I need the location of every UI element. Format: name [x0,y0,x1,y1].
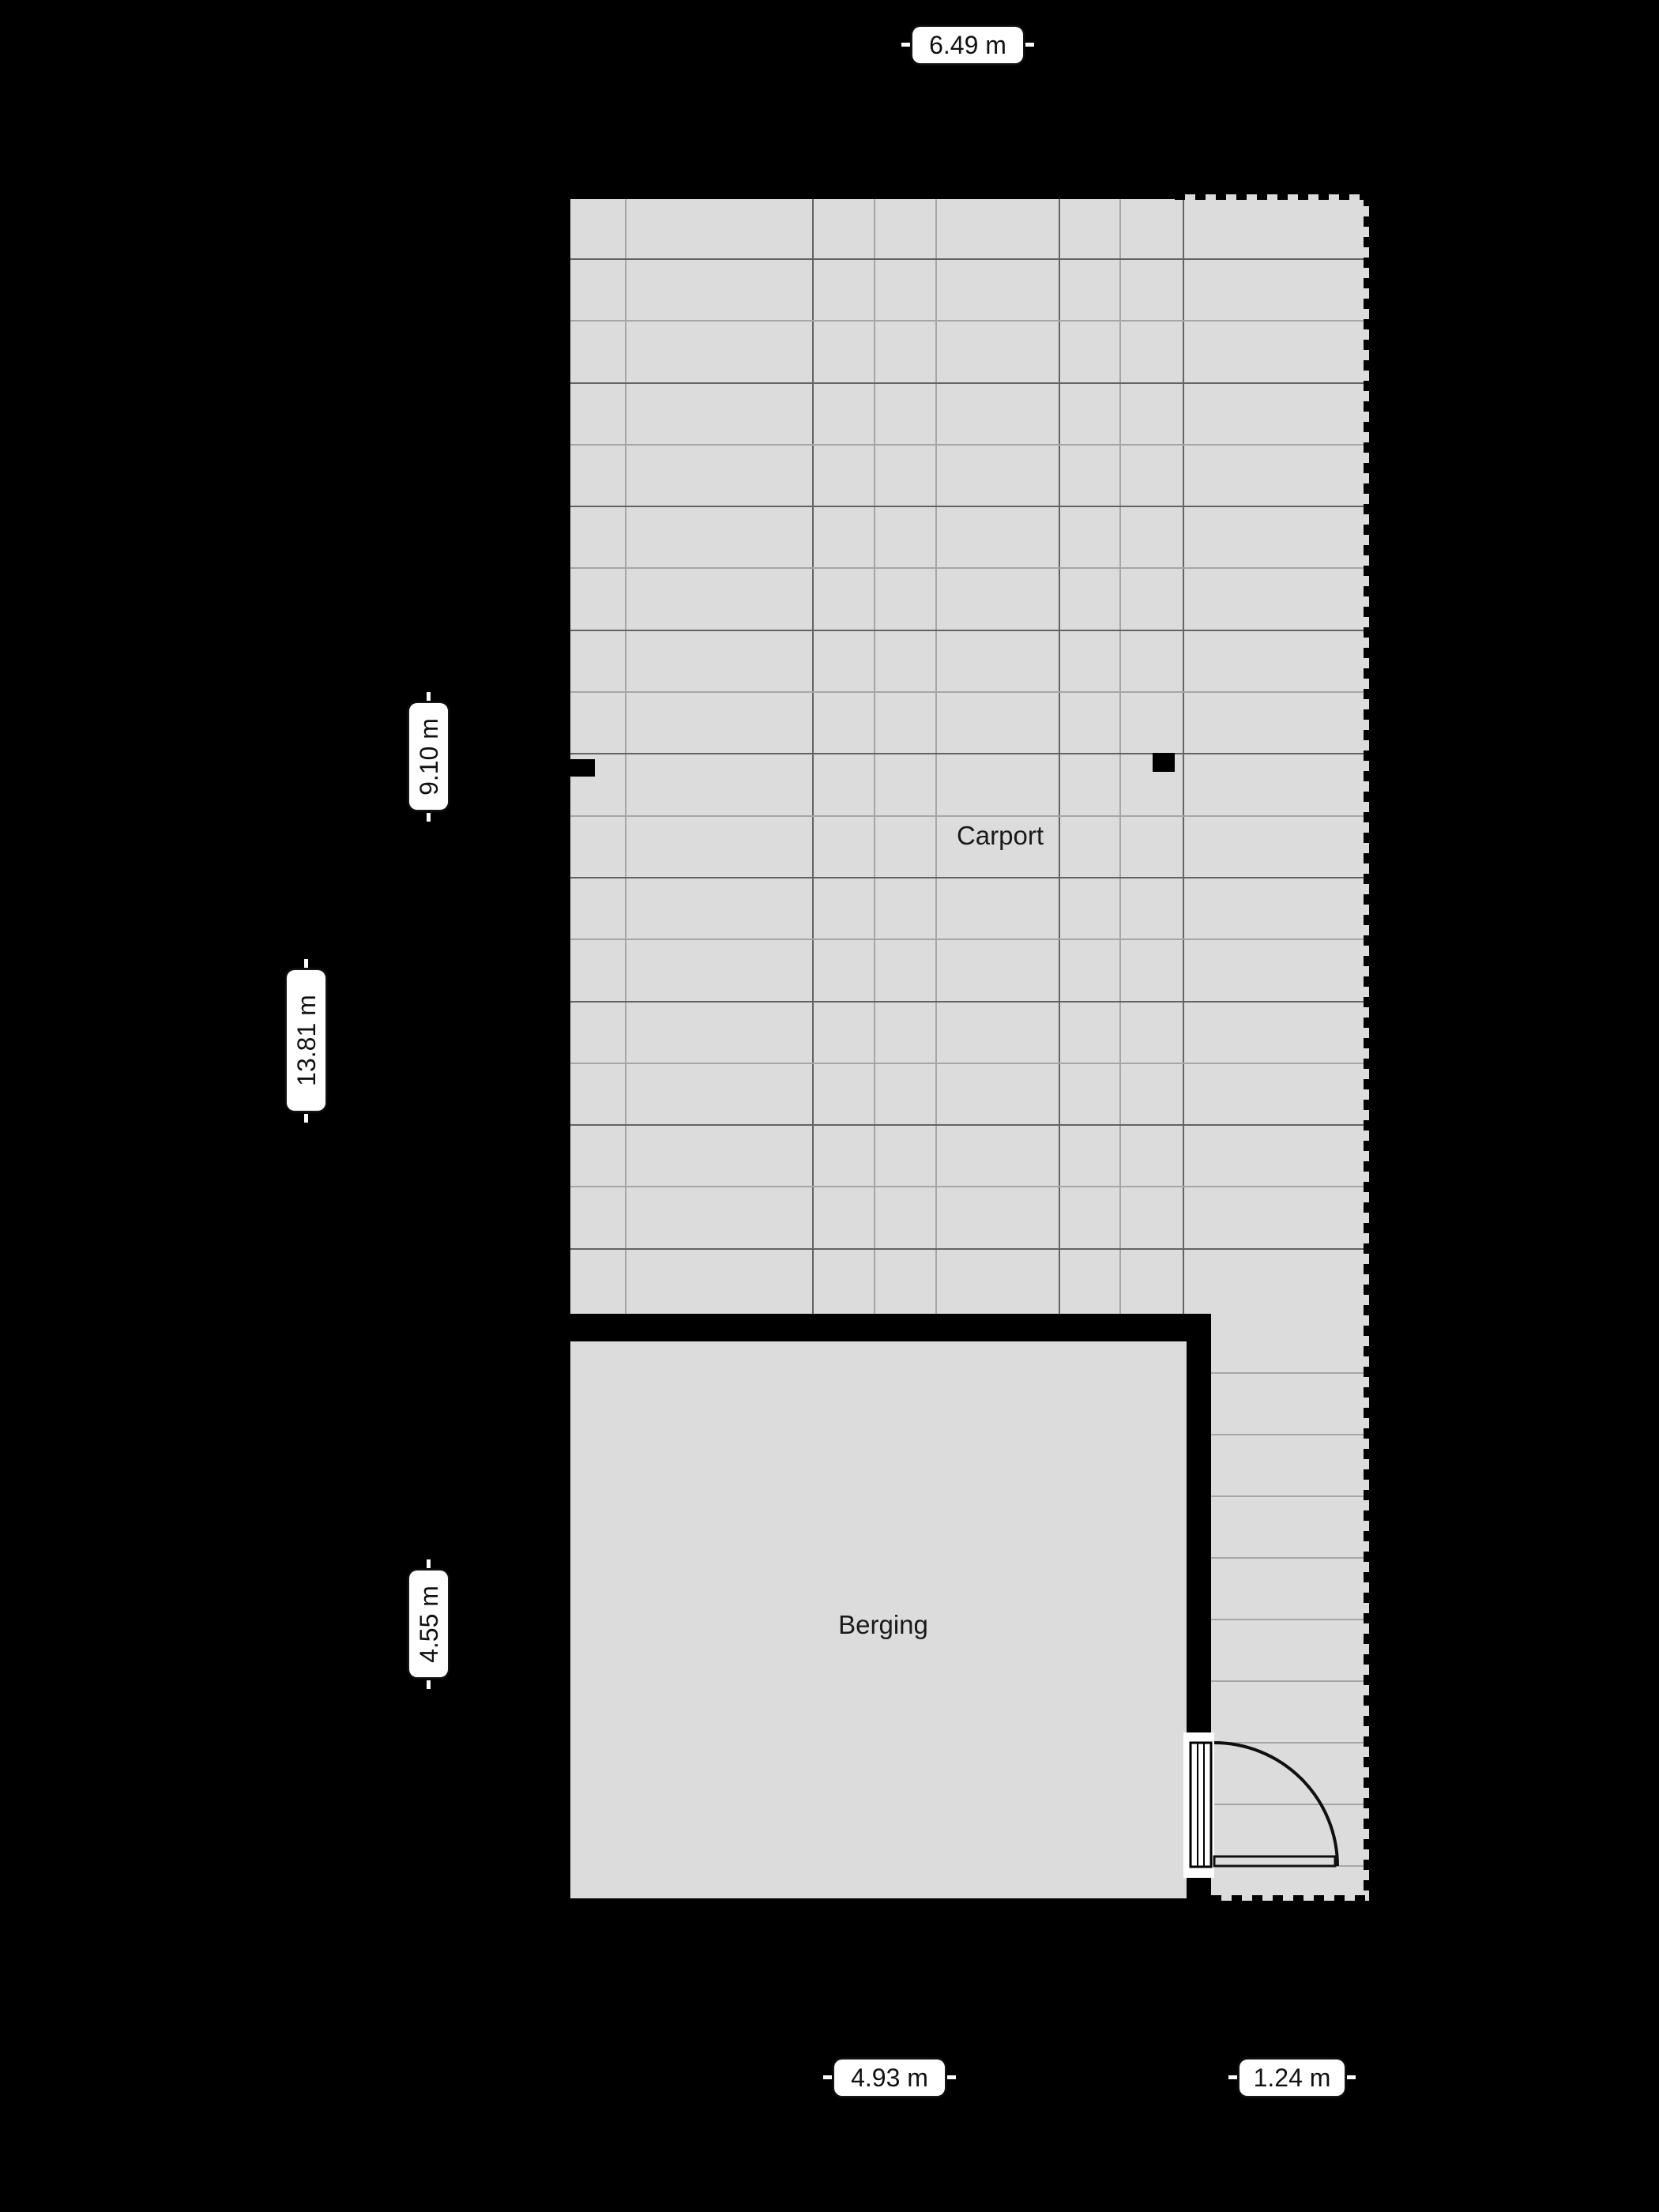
dimension-top-width: 6.49 m [912,27,1023,63]
grid-line [570,1248,1369,1250]
grid-line [812,194,814,1314]
grid-line [1211,1495,1369,1497]
grid-line [570,1124,1369,1126]
grid-line [570,753,1369,754]
dimension-tick [427,1559,431,1568]
carport-post-left [558,759,595,777]
grid-line [570,1063,1369,1064]
dimension-tick [304,959,308,968]
door-icon [1106,1659,1422,1975]
dimension-tick [427,692,431,701]
grid-line [570,1186,1369,1187]
berging-label: Berging [838,1610,928,1640]
dimension-text: 4.93 m [851,2065,928,2090]
dimension-left-berging: 4.55 m [409,1571,448,1677]
grid-line [1211,1619,1369,1620]
dimension-left-total: 13.81 m [287,970,325,1111]
dimension-left-carport: 9.10 m [409,703,448,810]
grid-line [570,258,1369,260]
dimension-tick [427,1680,431,1689]
grid-line [570,567,1369,569]
grid-line [570,877,1369,878]
dimension-tick [304,1114,308,1123]
dimension-tick [901,43,910,47]
grid-line [874,194,875,1314]
dimension-tick [823,2075,832,2079]
grid-line [935,194,937,1314]
grid-line [1211,1434,1369,1435]
plan-top-edge-dashed [1175,194,1369,200]
grid-line [570,939,1369,940]
grid-line [570,1001,1369,1003]
dimension-text: 4.55 m [416,1586,442,1663]
grid-line [1119,194,1121,1314]
dimension-text: 13.81 m [294,995,319,1086]
berging-top-wall [553,1314,1211,1341]
grid-line [1059,194,1060,1314]
grid-line [1211,1372,1369,1374]
dimension-bottom-strip: 1.24 m [1240,2060,1345,2096]
dimension-text: 9.10 m [416,718,442,796]
grid-line [570,506,1369,507]
grid-line [570,691,1369,693]
dimension-text: 6.49 m [929,32,1006,58]
plan-top-edge [570,194,1175,199]
dimension-tick [947,2075,956,2079]
dimension-tick [427,813,431,822]
grid-line [1183,194,1184,1314]
dimension-tick [1025,43,1034,47]
dimension-bottom-berging: 4.93 m [834,2060,945,2096]
dimension-text: 1.24 m [1254,2065,1331,2090]
grid-line [1211,1557,1369,1559]
carport-area [570,194,1369,1314]
grid-line [570,630,1369,631]
dimension-tick [1228,2075,1237,2079]
floor-plan: Carport Berging 6.49 m 9.10 m 13.81 m 4.… [0,0,1659,2212]
carport-label: Carport [957,821,1044,851]
grid-line [570,444,1369,446]
grid-line [625,194,626,1314]
dimension-tick [1347,2075,1356,2079]
carport-post-right [1153,753,1175,772]
plan-right-edge-dashed [1364,196,1369,1899]
grid-line [570,815,1369,817]
grid-line [570,382,1369,384]
grid-line [570,320,1369,322]
